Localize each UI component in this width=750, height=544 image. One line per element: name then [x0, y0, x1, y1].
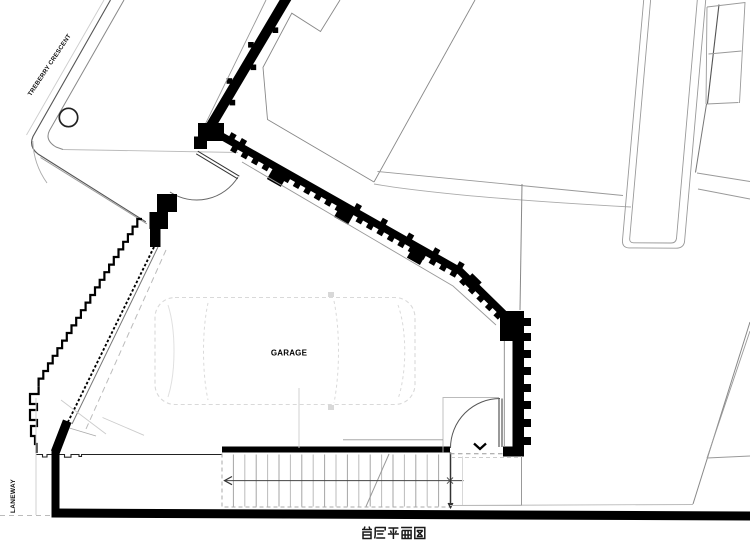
svg-text:LANEWAY: LANEWAY [10, 479, 17, 513]
svg-text:GARAGE: GARAGE [271, 349, 308, 358]
